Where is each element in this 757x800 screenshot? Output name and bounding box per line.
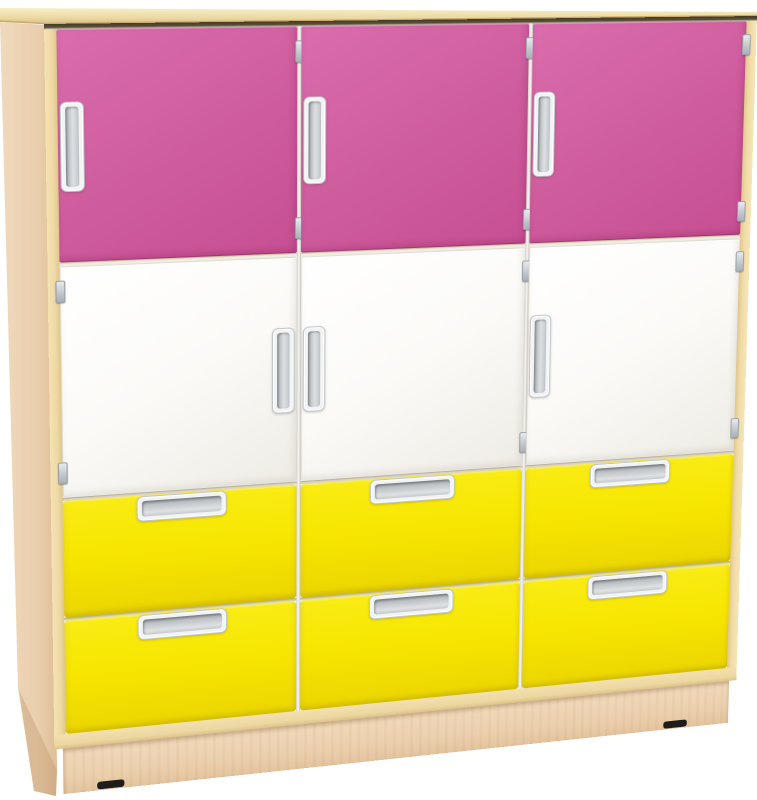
pink-door-1 [56,26,297,262]
handle-recess [65,106,79,186]
handle-recess [142,613,221,635]
handle-recess [592,575,663,596]
handle-recess [537,96,550,172]
handle-recess [309,101,322,179]
door-handle [272,327,295,414]
pink-door-2 [301,23,528,252]
pink-door-3 [529,21,747,243]
door-handle [60,101,85,192]
handle-recess [533,319,546,393]
door-handle [304,96,327,184]
product-photo-canvas [0,0,757,800]
door-hinge [741,34,750,55]
handle-recess [308,331,320,407]
white-door-1 [60,257,298,498]
door-handle [528,314,551,398]
handle-recess [375,479,450,499]
handle-recess [141,496,221,517]
door-hinge [735,251,744,272]
door-hinge [730,418,739,438]
door-hinge [57,462,67,484]
handle-recess [595,464,666,484]
handle-recess [277,332,289,408]
white-door-3 [525,238,740,465]
door-hinge [55,281,65,304]
door-handle [303,326,326,412]
handle-recess [374,593,449,614]
door-handle [532,91,555,177]
white-door-2 [301,247,525,481]
cabinet-front [44,16,757,795]
door-hinge [736,201,745,222]
